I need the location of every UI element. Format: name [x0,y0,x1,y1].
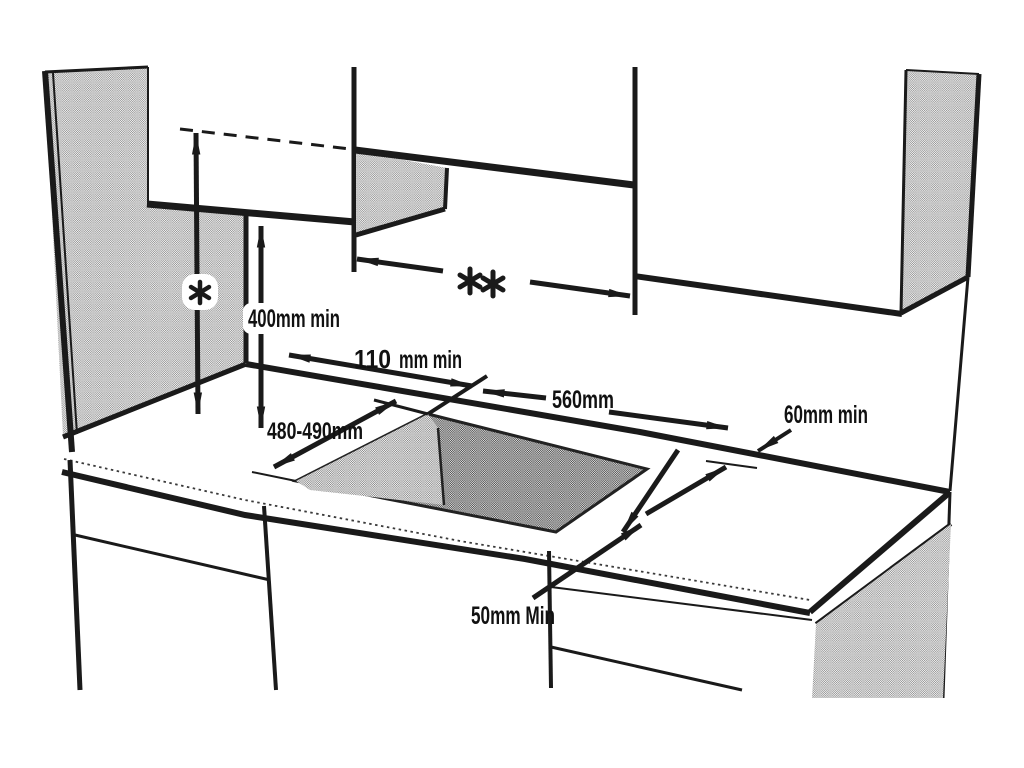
svg-text:400mm min: 400mm min [248,305,340,333]
svg-text:mm min: mm min [399,346,462,374]
svg-text:110: 110 [354,344,391,374]
svg-text:560mm: 560mm [552,386,614,414]
svg-text:50mm Min: 50mm Min [471,602,555,630]
svg-text:60mm min: 60mm min [784,401,868,429]
svg-text:480-490mm: 480-490mm [267,418,363,445]
